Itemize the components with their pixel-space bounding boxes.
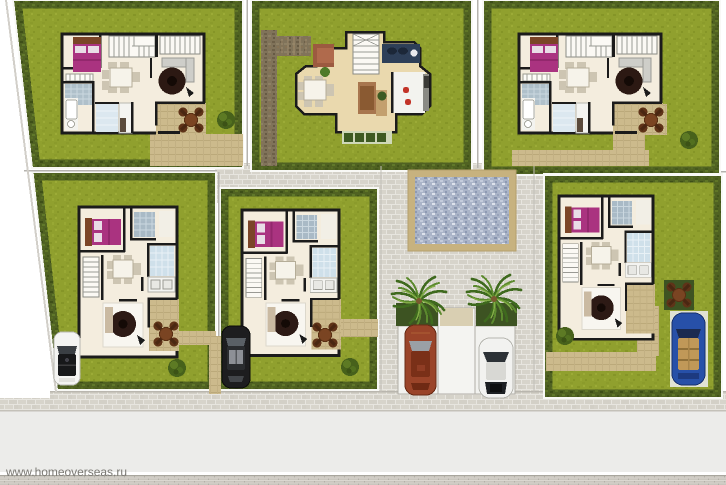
svg-text:www.homeoverseas.ru: www.homeoverseas.ru [5, 465, 127, 479]
